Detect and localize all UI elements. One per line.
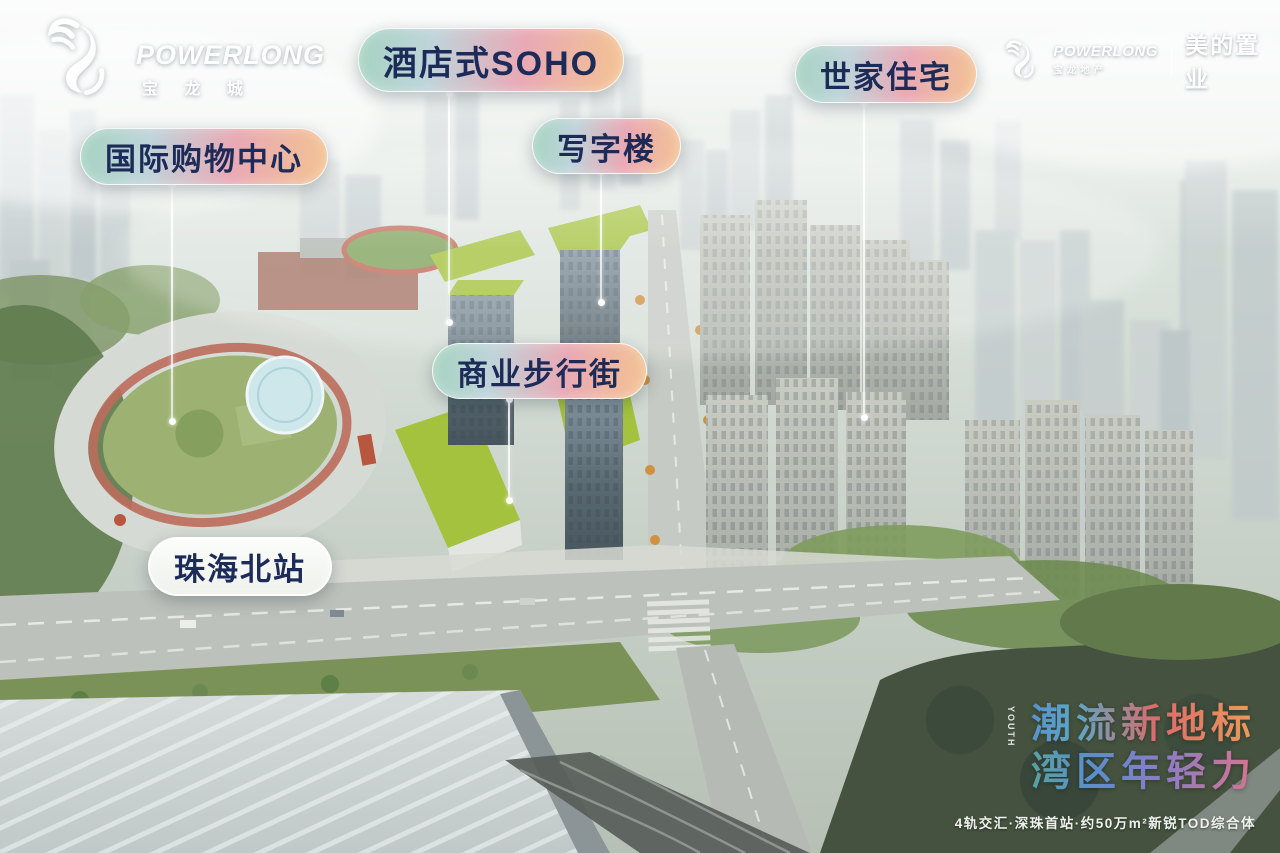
callout-commercial-pedestrian-street: 商业步行街 bbox=[432, 343, 647, 399]
powerlong-city-logo: POWERLONG 宝 龙 城 bbox=[44, 10, 325, 106]
leader-line-office-tower bbox=[600, 171, 602, 303]
callout-office-tower: 写字楼 bbox=[532, 118, 681, 174]
lockup-divider bbox=[1171, 44, 1172, 76]
leader-line-residences bbox=[863, 102, 865, 418]
leader-line-shopping-mall bbox=[171, 184, 173, 422]
callout-international-shopping-mall: 国际购物中心 bbox=[80, 128, 328, 185]
developer-logotype: POWERLONG bbox=[1053, 44, 1158, 59]
leader-line-hotel-soho bbox=[448, 93, 450, 323]
dragon-icon bbox=[44, 10, 140, 106]
developer-wordmark: 宝龙地产 bbox=[1053, 62, 1158, 76]
brand-logotype: POWERLONG bbox=[136, 40, 325, 71]
callout-zhuhai-north-station: 珠海北站 bbox=[148, 537, 332, 596]
callout-heritage-residences: 世家住宅 bbox=[795, 45, 977, 103]
slogan-subline: 4轨交汇·深珠首站·约50万m²新锐TOD综合体 bbox=[930, 812, 1256, 832]
brand-city-wordmark: 宝 龙 城 bbox=[136, 75, 325, 99]
partner-wordmark: 美的置业 bbox=[1185, 26, 1280, 94]
slogan-line-1: 潮流新地标 bbox=[930, 700, 1256, 748]
dragon-icon bbox=[1004, 35, 1051, 85]
callout-hotel-style-soho: 酒店式SOHO bbox=[358, 28, 624, 92]
leader-line-pedestrian-street bbox=[508, 399, 510, 501]
masterplan-poster: 酒店式SOHO 国际购物中心 写字楼 世家住宅 商业步行街 珠海北站 POWER… bbox=[0, 0, 1280, 853]
slogan-line-2: 湾区年轻力 bbox=[930, 748, 1256, 796]
developer-lockup: POWERLONG 宝龙地产 美的置业 bbox=[1004, 26, 1280, 94]
slogan-block: YOUTH 潮流新地标 湾区年轻力 4轨交汇·深珠首站·约50万m²新锐TOD综… bbox=[930, 700, 1256, 832]
